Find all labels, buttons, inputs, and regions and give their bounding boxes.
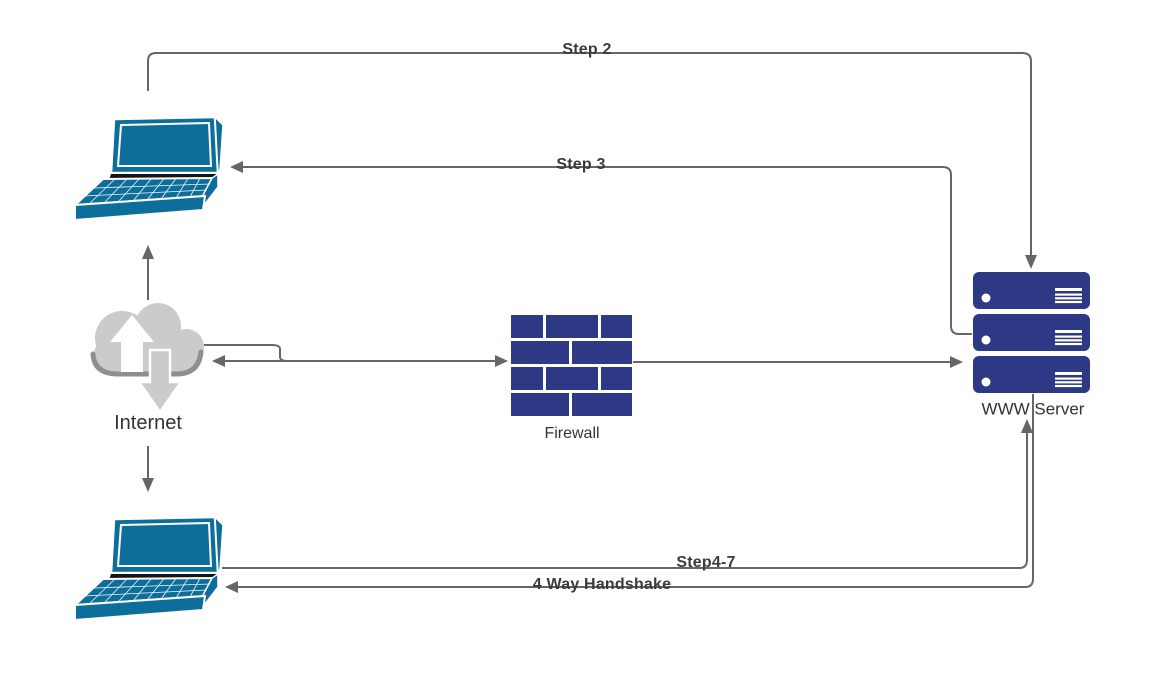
connector-internet-to-bottom-laptop[interactable] <box>142 446 154 492</box>
server-unit <box>973 272 1090 309</box>
server-unit <box>973 314 1090 351</box>
arrowhead-right-icon <box>950 356 963 368</box>
connector-internet-to-top-laptop[interactable] <box>142 245 154 300</box>
connector-step3[interactable] <box>230 161 972 334</box>
firewall-label: Firewall <box>544 426 599 442</box>
firewall-brick-icon[interactable] <box>511 315 632 416</box>
arrowhead-down-icon <box>142 478 154 492</box>
arrowhead-left-icon <box>225 581 238 593</box>
connector-4-way-handshake[interactable] <box>225 394 1033 593</box>
arrowhead-right-icon <box>495 355 508 367</box>
diagram-canvas: Step 2 Step 3 Step4-7 4 Way Handshake In… <box>0 0 1163 695</box>
server-unit <box>973 356 1090 393</box>
internet-label: Internet <box>114 413 182 433</box>
connector-label-step3: Step 3 <box>556 157 605 173</box>
laptop-icon[interactable] <box>75 517 223 620</box>
connector-label-step2: Step 2 <box>562 42 611 58</box>
connector-step4-7[interactable] <box>222 419 1033 568</box>
connector-label-step4-7: Step4-7 <box>676 555 735 571</box>
cloud-internet-icon[interactable] <box>93 303 204 412</box>
arrowhead-left-icon <box>230 161 243 173</box>
arrowhead-up-icon <box>142 245 154 259</box>
arrowhead-up-icon <box>1021 419 1033 433</box>
connector-label-4-way-handshake: 4 Way Handshake <box>533 577 671 593</box>
server-stack-icon[interactable] <box>973 272 1090 393</box>
laptop-icon[interactable] <box>75 117 223 220</box>
arrowhead-down-icon <box>1025 255 1037 269</box>
arrowhead-left-icon <box>212 355 225 367</box>
www-server-label: WWW Server <box>982 401 1085 418</box>
